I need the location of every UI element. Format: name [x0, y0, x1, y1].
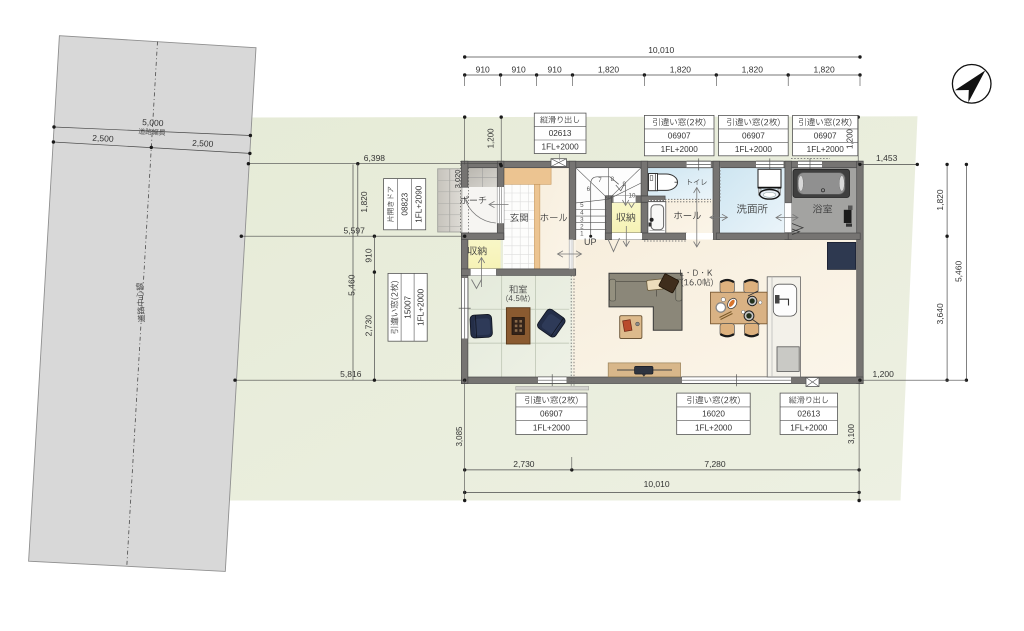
svg-text:1,820: 1,820: [935, 189, 945, 211]
svg-text:5,816: 5,816: [340, 369, 362, 379]
svg-text:5,460: 5,460: [954, 260, 964, 282]
svg-text:15007: 15007: [404, 295, 413, 318]
svg-text:1FL+2000: 1FL+2000: [695, 424, 733, 433]
svg-text:3: 3: [580, 216, 584, 223]
svg-text:02613: 02613: [797, 410, 820, 419]
svg-text:2,730: 2,730: [364, 315, 374, 337]
svg-text:5,460: 5,460: [347, 274, 357, 296]
svg-text:7,280: 7,280: [704, 459, 726, 469]
svg-text:1,820: 1,820: [742, 64, 764, 74]
svg-text:1,200: 1,200: [873, 369, 895, 379]
svg-text:1FL+2000: 1FL+2000: [790, 424, 828, 433]
svg-text:02613: 02613: [549, 129, 572, 138]
svg-text:7: 7: [598, 177, 602, 184]
svg-text:06907: 06907: [668, 132, 691, 141]
svg-text:1,453: 1,453: [876, 153, 898, 163]
svg-text:1,820: 1,820: [670, 64, 692, 74]
svg-text:1FL+2090: 1FL+2090: [415, 185, 424, 223]
svg-text:3,100: 3,100: [847, 423, 856, 444]
svg-text:2,500: 2,500: [92, 133, 114, 144]
svg-text:3,640: 3,640: [935, 303, 945, 325]
svg-text:8: 8: [611, 176, 615, 183]
svg-text:910: 910: [364, 248, 374, 262]
svg-text:10: 10: [629, 193, 636, 200]
svg-text:2,730: 2,730: [513, 459, 535, 469]
svg-text:10,010: 10,010: [644, 479, 670, 489]
svg-text:1,820: 1,820: [598, 64, 620, 74]
svg-text:1,820: 1,820: [813, 64, 835, 74]
svg-text:6,398: 6,398: [364, 153, 386, 163]
svg-text:1,200: 1,200: [846, 128, 855, 149]
svg-text:5,000: 5,000: [142, 117, 164, 128]
svg-text:910: 910: [476, 64, 490, 74]
svg-text:2,500: 2,500: [192, 138, 214, 149]
svg-text:3,085: 3,085: [455, 426, 464, 447]
svg-text:910: 910: [512, 64, 526, 74]
svg-text:10,010: 10,010: [648, 45, 674, 55]
svg-text:1FL+2000: 1FL+2000: [533, 424, 571, 433]
svg-text:16020: 16020: [702, 410, 725, 419]
svg-text:06907: 06907: [540, 410, 563, 419]
svg-text:1,200: 1,200: [487, 128, 496, 149]
svg-text:3,020: 3,020: [453, 170, 462, 189]
svg-text:1FL+2000: 1FL+2000: [417, 288, 426, 326]
svg-text:6: 6: [587, 186, 591, 193]
svg-text:4: 4: [580, 209, 584, 216]
svg-text:1FL+2000: 1FL+2000: [735, 145, 773, 154]
svg-text:5: 5: [580, 202, 584, 209]
svg-text:2: 2: [580, 223, 584, 230]
svg-text:5,597: 5,597: [344, 225, 366, 235]
svg-text:1FL+2000: 1FL+2000: [807, 145, 845, 154]
svg-text:08823: 08823: [401, 192, 410, 215]
svg-text:1FL+2000: 1FL+2000: [542, 143, 580, 152]
svg-text:910: 910: [548, 64, 562, 74]
svg-text:1,820: 1,820: [359, 191, 369, 213]
svg-text:1FL+2000: 1FL+2000: [661, 145, 699, 154]
svg-text:06907: 06907: [814, 132, 837, 141]
svg-text:UP: UP: [584, 237, 597, 247]
svg-text:06907: 06907: [742, 132, 765, 141]
